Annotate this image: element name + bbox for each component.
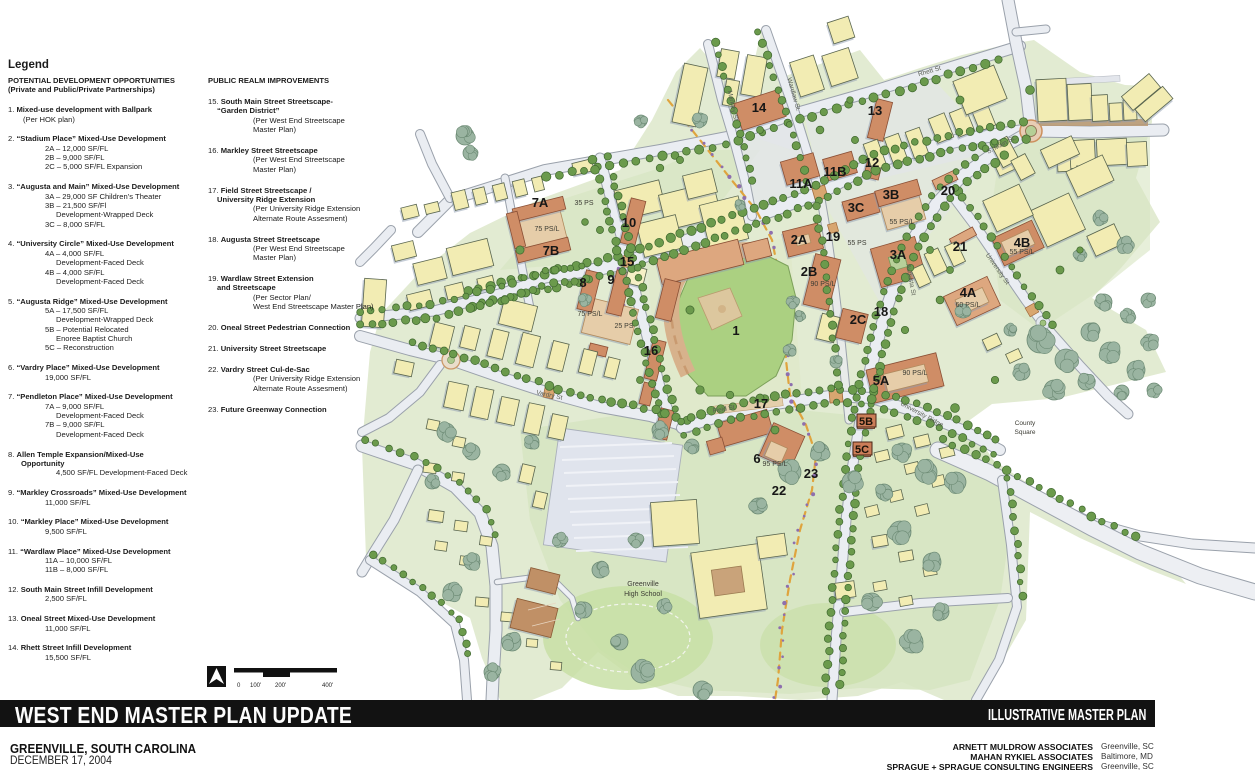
- svg-text:3B: 3B: [883, 187, 900, 202]
- svg-text:10: 10: [622, 215, 636, 230]
- svg-text:Square: Square: [1015, 429, 1036, 436]
- svg-text:55 PS: 55 PS: [847, 240, 866, 247]
- svg-text:55 PS/L: 55 PS/L: [1010, 249, 1035, 256]
- svg-text:35 PS: 35 PS: [574, 200, 593, 207]
- svg-text:400': 400': [322, 683, 333, 689]
- svg-text:75 PS/L: 75 PS/L: [535, 226, 560, 233]
- svg-text:Greenville: Greenville: [627, 581, 659, 588]
- svg-text:6: 6: [753, 451, 760, 466]
- svg-text:14: 14: [752, 100, 767, 115]
- svg-text:11B: 11B: [823, 164, 846, 179]
- svg-text:100': 100': [250, 683, 261, 689]
- svg-text:22: 22: [772, 483, 786, 498]
- svg-text:11A: 11A: [789, 176, 813, 191]
- svg-text:2B: 2B: [801, 264, 818, 279]
- svg-text:8: 8: [579, 275, 586, 290]
- svg-text:18: 18: [874, 304, 888, 319]
- svg-text:60 PS/L: 60 PS/L: [956, 302, 981, 309]
- svg-text:High School: High School: [624, 591, 662, 598]
- svg-text:County: County: [1015, 420, 1036, 427]
- svg-text:90 PS/L: 90 PS/L: [903, 370, 928, 377]
- svg-text:4A: 4A: [960, 285, 977, 300]
- svg-text:75 PS/L: 75 PS/L: [578, 311, 603, 318]
- svg-text:0: 0: [237, 683, 241, 689]
- svg-text:55 PS/L: 55 PS/L: [890, 219, 915, 226]
- svg-text:21: 21: [953, 239, 967, 254]
- svg-text:15: 15: [620, 254, 634, 269]
- svg-text:5B: 5B: [859, 416, 873, 428]
- svg-text:95 PS/L: 95 PS/L: [763, 461, 788, 468]
- svg-text:90 PS/L: 90 PS/L: [811, 281, 836, 288]
- svg-text:20: 20: [941, 183, 955, 198]
- svg-text:13: 13: [868, 103, 882, 118]
- svg-text:2C: 2C: [850, 312, 867, 327]
- svg-text:1: 1: [732, 323, 739, 338]
- svg-text:3C: 3C: [848, 200, 865, 215]
- svg-text:7A: 7A: [532, 195, 549, 210]
- svg-text:12: 12: [865, 155, 879, 170]
- svg-text:5A: 5A: [873, 373, 890, 388]
- svg-text:4B: 4B: [1014, 235, 1031, 250]
- svg-text:3A: 3A: [890, 247, 907, 262]
- svg-text:5C: 5C: [855, 444, 869, 456]
- svg-text:7B: 7B: [543, 243, 560, 258]
- svg-text:2A: 2A: [791, 232, 808, 247]
- svg-text:200': 200': [275, 683, 286, 689]
- svg-text:9: 9: [607, 272, 614, 287]
- svg-text:23: 23: [804, 466, 818, 481]
- svg-text:17: 17: [754, 396, 768, 411]
- svg-text:25 PS: 25 PS: [614, 323, 633, 330]
- svg-text:16: 16: [644, 343, 658, 358]
- svg-text:19: 19: [826, 229, 840, 244]
